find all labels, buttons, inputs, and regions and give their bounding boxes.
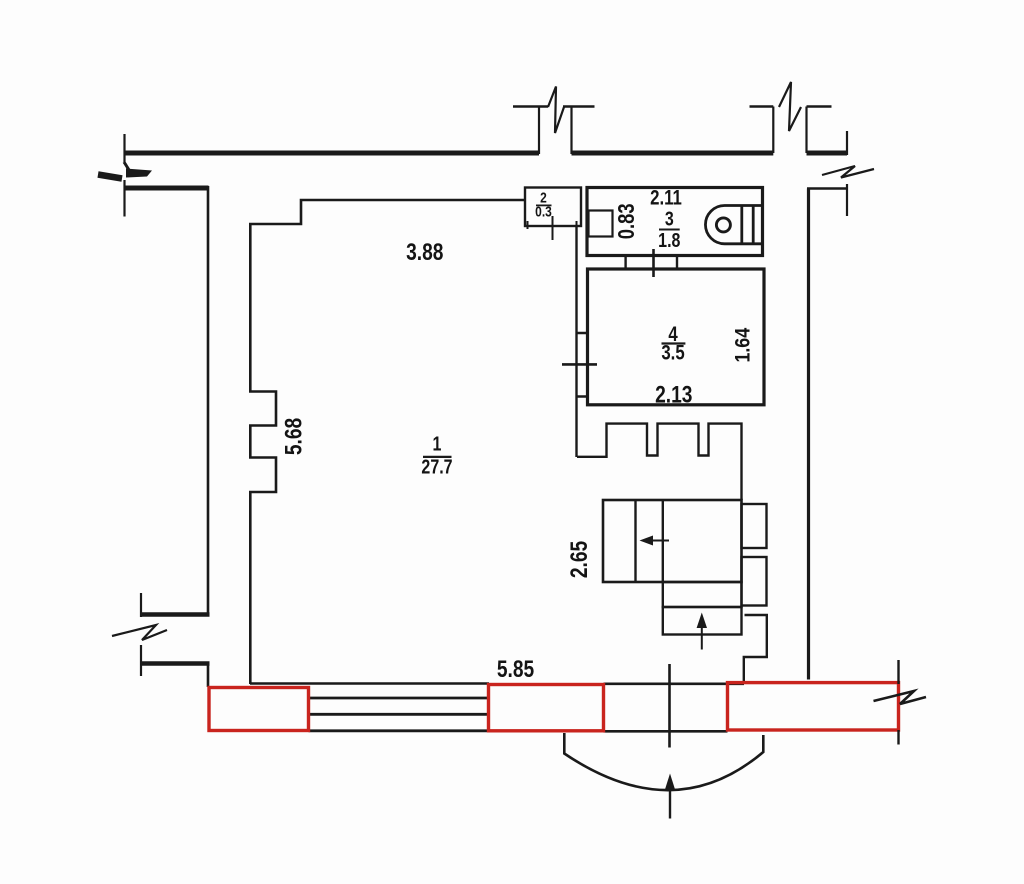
svg-text:2.11: 2.11 [650, 187, 682, 210]
svg-text:2.65: 2.65 [565, 541, 593, 578]
svg-text:2.13: 2.13 [655, 380, 692, 408]
svg-text:1: 1 [433, 433, 442, 455]
svg-text:3.88: 3.88 [406, 238, 443, 266]
svg-text:5.85: 5.85 [497, 655, 534, 683]
svg-text:0.3: 0.3 [535, 203, 552, 220]
svg-text:3.5: 3.5 [661, 342, 685, 365]
svg-text:5.68: 5.68 [279, 418, 307, 455]
svg-text:3: 3 [665, 208, 674, 230]
svg-text:0.83: 0.83 [614, 203, 639, 239]
svg-text:27.7: 27.7 [421, 456, 452, 478]
svg-text:1.8: 1.8 [658, 229, 680, 251]
svg-text:1.64: 1.64 [731, 328, 755, 363]
